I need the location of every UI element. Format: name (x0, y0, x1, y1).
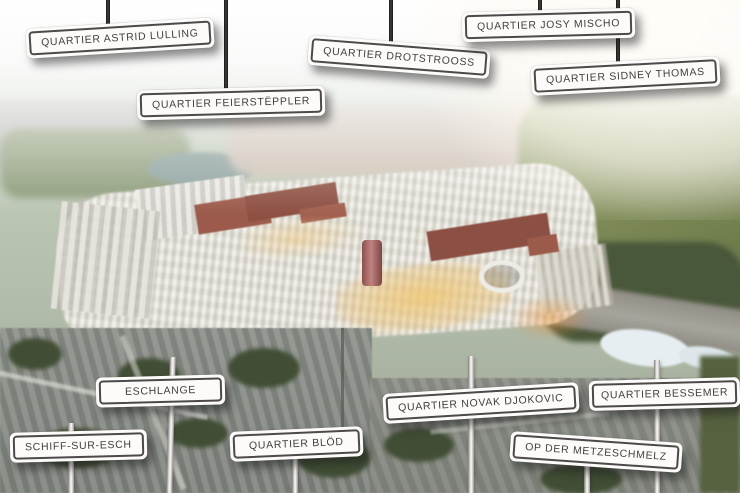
signpost-pole (468, 356, 474, 493)
sign-quartier-feiersteppler: QUARTIER FEIERSTËPPLER (137, 86, 326, 121)
sign-label: ESCHLANGE (125, 384, 196, 398)
sign-frame: QUARTIER BESSEMER (592, 380, 738, 408)
building-blocks (51, 201, 162, 319)
trees (384, 428, 454, 462)
circular-building (479, 260, 525, 293)
sign-label: QUARTIER BESSEMER (601, 386, 729, 401)
sign-label: QUARTIER SIDNEY THOMAS (546, 66, 705, 86)
sign-quartier-blod: QUARTIER BLÖD (229, 426, 363, 462)
sign-label: QUARTIER FEIERSTËPPLER (152, 95, 310, 111)
red-chimney-tower (362, 240, 382, 286)
sign-schiff-sur-esch: SCHIFF-SUR-ESCH (10, 429, 147, 463)
sign-quartier-bessemer: QUARTIER BESSEMER (589, 377, 740, 411)
pointer-line (341, 328, 344, 438)
sign-frame: ESCHLANGE (99, 377, 223, 404)
trees (168, 418, 228, 448)
sign-label: QUARTIER NOVAK DJOKOVIC (398, 392, 564, 414)
sign-eschlange: ESCHLANGE (96, 374, 226, 407)
trees (228, 348, 300, 388)
sign-quartier-josy-mischo: QUARTIER JOSY MISCHO (462, 8, 636, 43)
sign-frame: QUARTIER JOSY MISCHO (465, 11, 633, 39)
orange-lit-area (512, 296, 588, 340)
sign-label: QUARTIER JOSY MISCHO (477, 17, 620, 33)
sign-label: SCHIFF-SUR-ESCH (25, 439, 132, 454)
sign-label: QUARTIER BLÖD (249, 436, 344, 452)
sign-frame: SCHIFF-SUR-ESCH (13, 432, 144, 459)
sign-frame: QUARTIER BLÖD (233, 429, 361, 459)
trees (540, 464, 622, 493)
sign-label: QUARTIER ASTRID LULLING (41, 27, 199, 49)
trees (8, 338, 62, 370)
annotated-aerial-image: QUARTIER ASTRID LULLING QUARTIER FEIERST… (0, 0, 740, 493)
sign-label: QUARTIER DROTSTROOSS (323, 45, 476, 69)
signpost-pole (224, 0, 228, 96)
sign-frame: QUARTIER FEIERSTËPPLER (140, 89, 323, 118)
sign-label: OP DER METZESCHMELZ (525, 441, 668, 463)
